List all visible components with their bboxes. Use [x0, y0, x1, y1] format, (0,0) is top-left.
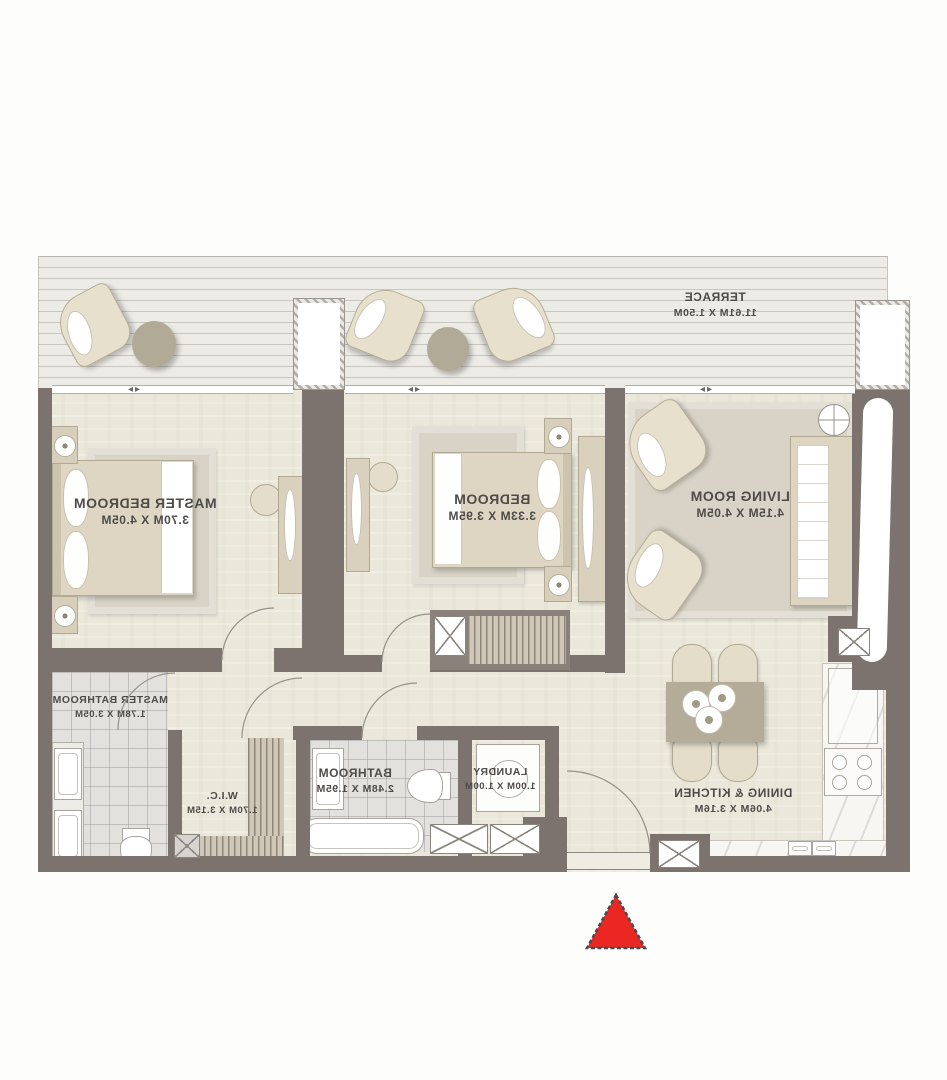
side-table [132, 321, 176, 367]
lounge-chair [470, 278, 557, 368]
burner [832, 755, 847, 770]
room-label-bedroom: BEDROOM 3.33M X 3.95M [392, 490, 592, 525]
room-dims: 1.78M X 3.05M [30, 709, 190, 721]
room-name: TERRACE [610, 290, 820, 306]
window-slider-arrows-icon: ◂▸ [408, 384, 422, 395]
bathroom-sink [54, 810, 82, 862]
wall [274, 648, 344, 672]
lounge-chair [49, 280, 137, 370]
nightstand [544, 566, 572, 602]
desk-lamp [351, 473, 362, 545]
wall [296, 740, 310, 856]
room-label-wic: W.I.C. 1.70M X 3.15M [152, 790, 292, 817]
side-table [427, 327, 469, 371]
lamp [54, 605, 76, 627]
room-name: MASTER BEDROOM [45, 494, 245, 512]
room-name: W.I.C. [152, 790, 292, 804]
room-name: LAUNDRY [430, 766, 570, 780]
wall [886, 640, 910, 872]
bathtub [302, 818, 424, 854]
nightstand [50, 426, 78, 464]
dining-chair [718, 740, 758, 782]
wall [38, 388, 52, 872]
room-label-terrace: TERRACE 11.61M X 1.50M [610, 290, 820, 320]
room-name: MASTER BATHROOM [30, 694, 190, 708]
window-slider-arrows-icon: ◂▸ [128, 384, 142, 395]
shaft-box [658, 840, 700, 868]
room-label-bathroom: BATHROOM 2.48M X 1.95M [275, 766, 435, 796]
floor-lamp [818, 404, 850, 436]
wall [302, 388, 344, 650]
terrace-deck [38, 256, 888, 389]
burner [832, 775, 847, 790]
wall [38, 856, 567, 872]
wardrobe-hatch [468, 616, 566, 664]
window [625, 385, 855, 394]
wall [605, 388, 625, 613]
room-label-living-room: LIVING ROOM 4.15M X 4.05M [640, 487, 840, 522]
burner [857, 775, 872, 790]
entrance-triangle-icon [587, 895, 645, 948]
window [52, 385, 293, 394]
shaft-box [430, 824, 488, 854]
lamp [54, 435, 76, 457]
room-label-laundry: LAUNDRY 1.00M X 1.00M [430, 766, 570, 793]
room-dims: 3.70M X 4.05M [45, 513, 245, 529]
burner [857, 755, 872, 770]
room-dims: 2.48M X 1.95M [275, 783, 435, 797]
dining-chair [672, 644, 712, 686]
wall [38, 648, 222, 672]
bathroom-sink [54, 748, 82, 800]
desk-lamp [284, 489, 296, 561]
shaft-box [838, 628, 870, 656]
dining-chair [672, 740, 712, 782]
wall [417, 726, 559, 740]
room-dims: 11.61M X 1.50M [610, 307, 820, 321]
window [345, 385, 605, 394]
room-label-master-bedroom: MASTER BEDROOM 3.70M X 4.05M [45, 494, 245, 529]
column [855, 300, 910, 390]
lamp [548, 574, 570, 596]
sofa-cushions [797, 445, 829, 599]
plate [695, 706, 723, 734]
room-dims: 1.70M X 3.15M [152, 805, 292, 817]
room-dims: 4.15M X 4.05M [640, 506, 840, 522]
room-label-dining-kitchen: DINING & KITCHEN 4.06M X 3.16M [633, 786, 833, 816]
desk [278, 476, 304, 594]
entrance-marker [583, 891, 649, 953]
shaft-box [434, 616, 466, 656]
room-dims: 3.33M X 3.95M [392, 509, 592, 525]
wall [605, 613, 625, 673]
room-name: LIVING ROOM [640, 487, 840, 505]
room-name: BATHROOM [275, 766, 435, 782]
pillow [63, 531, 89, 589]
kitchen-sink [788, 841, 812, 856]
dining-chair [718, 644, 758, 686]
nightstand [50, 596, 78, 634]
floor-plan: TERRACE 11.61M X 1.50M ◂▸ ◂▸ ◂▸ MASTER B… [0, 0, 947, 1080]
room-label-master-bathroom: MASTER BATHROOM 1.78M X 3.05M [30, 694, 190, 721]
lamp [548, 426, 570, 448]
desk-chair [368, 462, 398, 492]
room-name: BEDROOM [392, 490, 592, 508]
desk [346, 458, 370, 572]
wall [293, 726, 362, 740]
room-name: DINING & KITCHEN [633, 786, 833, 802]
room-dims: 4.06M X 3.16M [633, 803, 833, 817]
wardrobe-hatch [198, 836, 284, 856]
shaft-box [490, 824, 540, 854]
kitchen-sink [812, 841, 836, 856]
wall [344, 655, 382, 672]
nightstand [544, 418, 572, 454]
lounge-chair [343, 280, 428, 367]
entrance-threshold [567, 852, 650, 870]
room-dims: 1.00M X 1.00M [430, 781, 570, 793]
window-slider-arrows-icon: ◂▸ [700, 384, 714, 395]
column [293, 298, 345, 390]
shaft-box [174, 834, 200, 858]
